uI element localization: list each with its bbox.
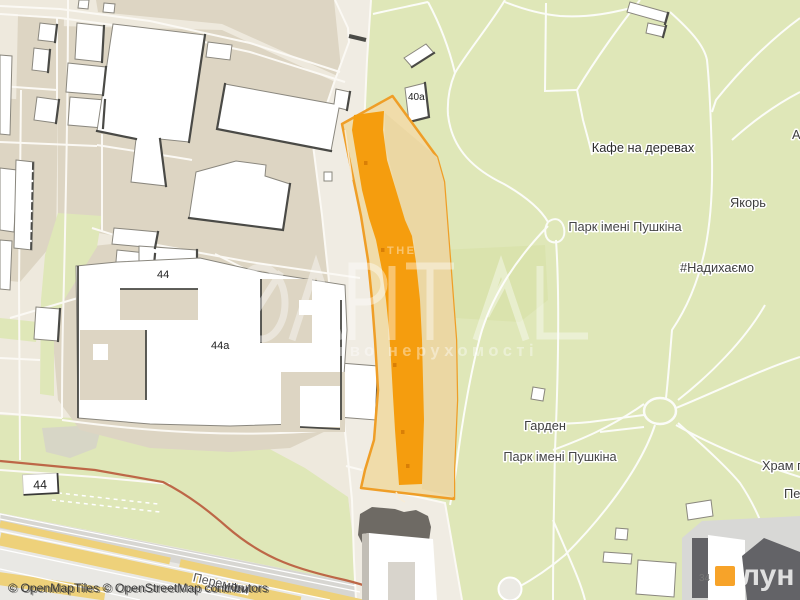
svg-text:Печ: Печ xyxy=(784,486,800,501)
svg-text:Ан: Ан xyxy=(792,127,800,142)
svg-text:Кафе на деревах: Кафе на деревах xyxy=(592,140,695,155)
svg-text:Гарден: Гарден xyxy=(524,418,566,433)
svg-text:Якорь: Якорь xyxy=(730,195,766,210)
svg-text:Парк імені Пушкіна: Парк імені Пушкіна xyxy=(568,219,682,234)
svg-text:44: 44 xyxy=(33,478,48,493)
svg-text:THE: THE xyxy=(387,245,417,257)
svg-text:#Надихаємо: #Надихаємо xyxy=(680,260,754,275)
svg-text:40a: 40a xyxy=(408,92,425,103)
svg-text:34: 34 xyxy=(699,573,711,584)
svg-text:44a: 44a xyxy=(211,340,230,352)
svg-text:лун: лун xyxy=(741,559,794,592)
svg-text:44: 44 xyxy=(157,269,169,281)
svg-text:агентство нерухомості: агентство нерухомості xyxy=(258,342,538,360)
svg-text:© OpenMapTiles © OpenStreetMap: © OpenMapTiles © OpenStreetMap contribut… xyxy=(10,582,270,596)
svg-text:Парк імені Пушкіна: Парк імені Пушкіна xyxy=(503,449,617,464)
svg-text:Храм п: Храм п xyxy=(762,458,800,473)
